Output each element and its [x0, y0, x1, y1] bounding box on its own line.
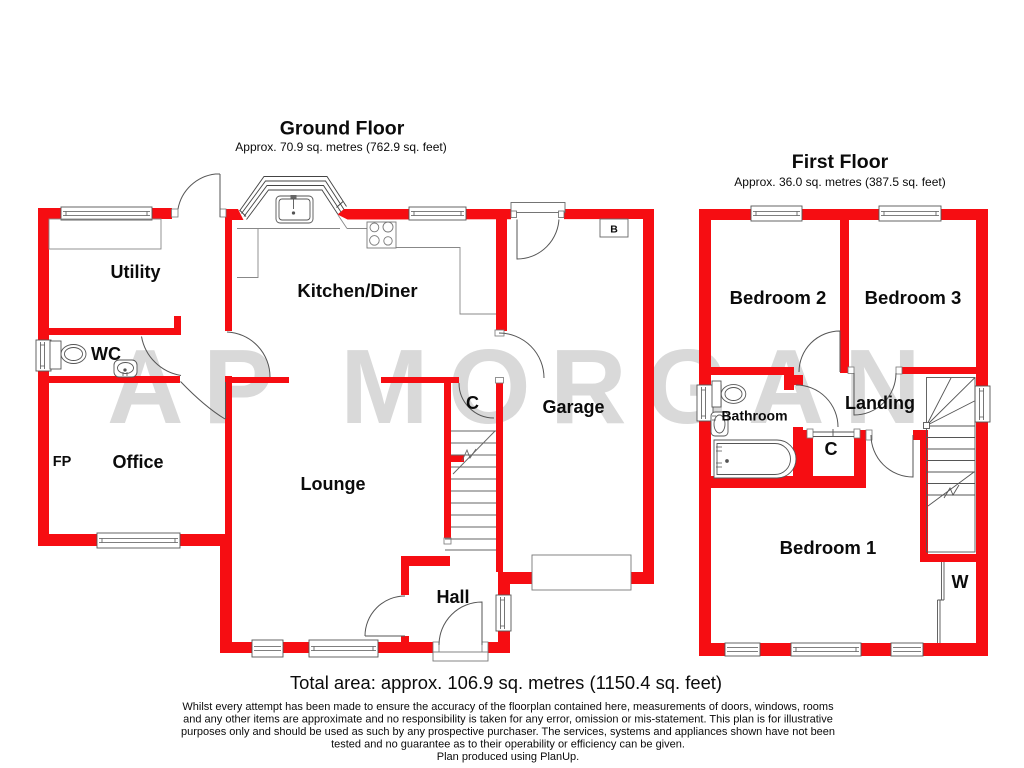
svg-text:First Floor: First Floor: [792, 151, 889, 173]
svg-text:Approx. 36.0 sq. metres (387.5: Approx. 36.0 sq. metres (387.5 sq. feet): [734, 175, 945, 189]
svg-text:W: W: [952, 572, 969, 592]
svg-text:Office: Office: [112, 452, 163, 472]
svg-text:Whilst every attempt has been: Whilst every attempt has been made to en…: [182, 701, 834, 713]
svg-text:tested and no guarantee as to: tested and no guarantee as to their oper…: [331, 739, 685, 751]
svg-text:Bathroom: Bathroom: [721, 408, 787, 424]
svg-text:Lounge: Lounge: [301, 474, 366, 494]
svg-text:Kitchen/Diner: Kitchen/Diner: [297, 280, 417, 301]
svg-text:Ground Floor: Ground Floor: [280, 118, 405, 140]
svg-text:Plan produced using PlanUp.: Plan produced using PlanUp.: [437, 751, 579, 763]
svg-text:C: C: [825, 439, 838, 459]
svg-text:Bedroom 2: Bedroom 2: [730, 287, 827, 308]
svg-text:B: B: [610, 224, 618, 236]
svg-text:Approx. 70.9 sq. metres (762.9: Approx. 70.9 sq. metres (762.9 sq. feet): [235, 140, 446, 154]
svg-text:Bedroom 3: Bedroom 3: [865, 287, 962, 308]
svg-text:Landing: Landing: [845, 393, 915, 413]
svg-text:WC: WC: [91, 344, 121, 364]
svg-text:purposes only and should be us: purposes only and should be used as such…: [181, 726, 835, 738]
svg-text:Bedroom 1: Bedroom 1: [780, 537, 877, 558]
svg-text:C: C: [466, 393, 479, 413]
svg-text:and any other items are approx: and any other items are approximate and …: [183, 714, 833, 726]
svg-text:Utility: Utility: [110, 262, 160, 282]
svg-text:Total area: approx. 106.9 sq.: Total area: approx. 106.9 sq. metres (11…: [290, 672, 722, 693]
svg-text:FP: FP: [53, 454, 72, 470]
svg-text:Hall: Hall: [436, 587, 469, 607]
svg-text:Garage: Garage: [542, 397, 604, 417]
